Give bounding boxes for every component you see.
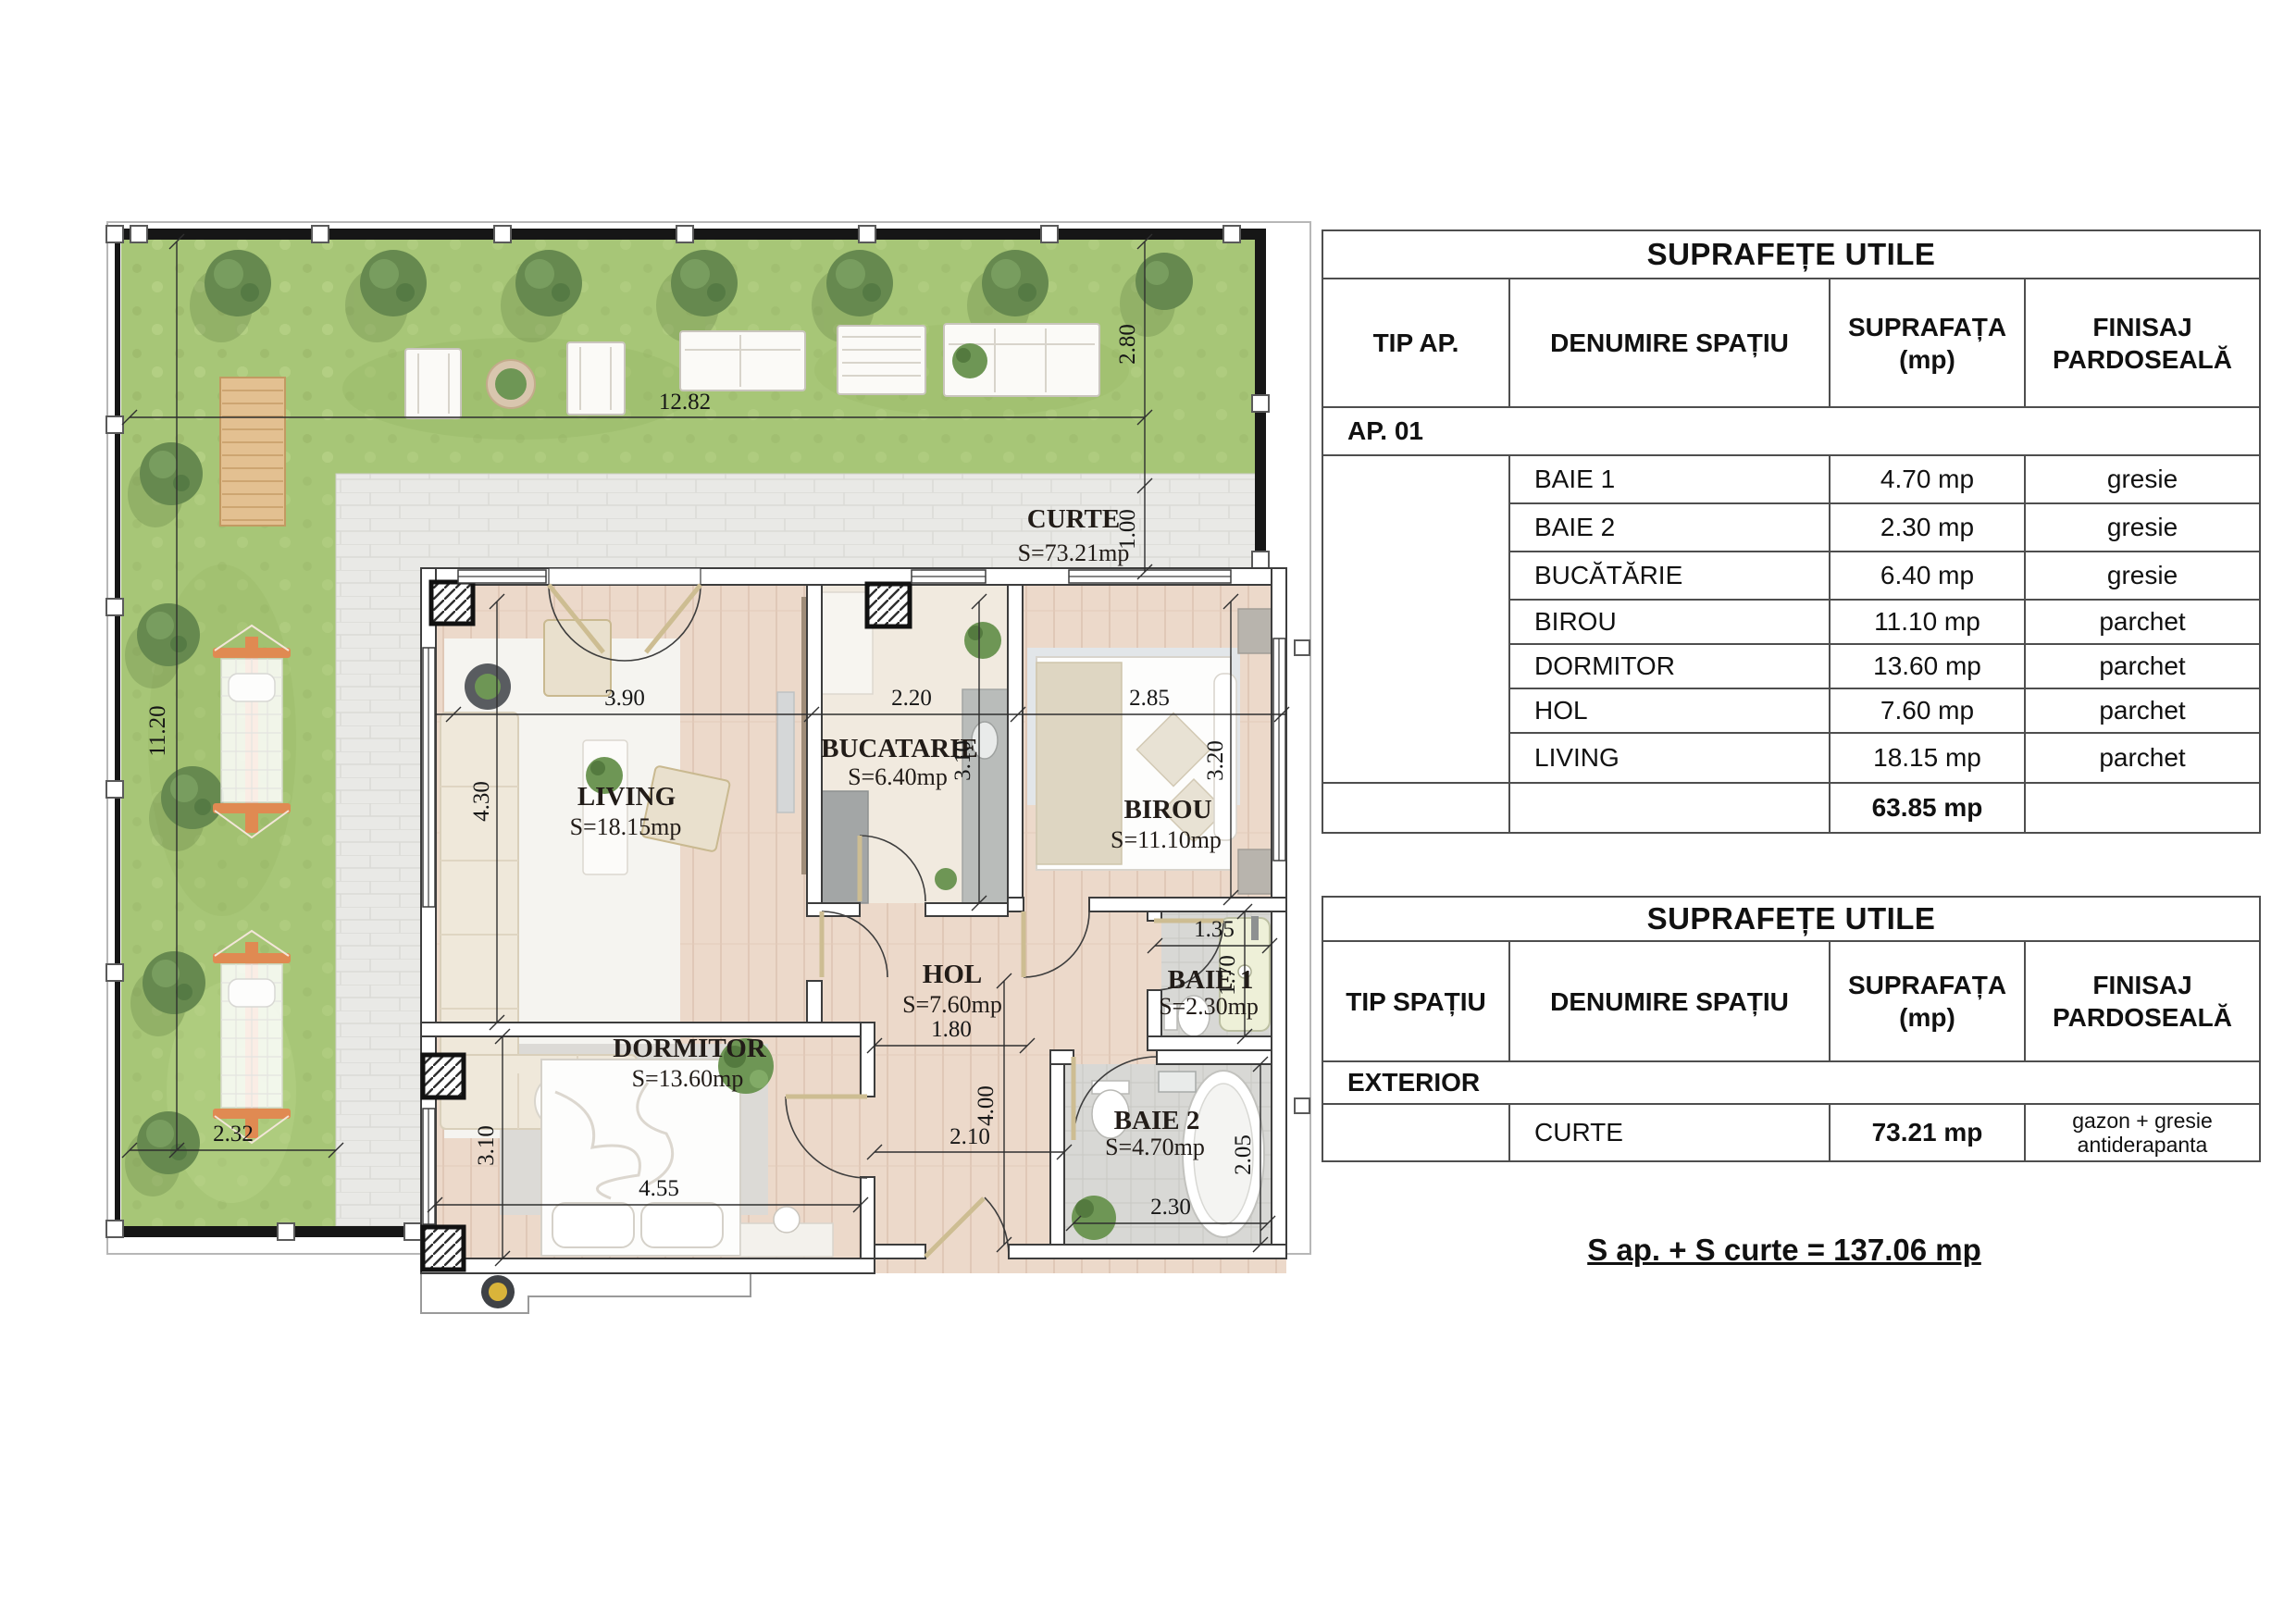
row-name: CURTE xyxy=(1509,1104,1830,1161)
living-area: S=18.15mp xyxy=(570,813,682,840)
dim-dormitor-w: 4.55 xyxy=(639,1176,679,1201)
bucatarie-area: S=6.40mp xyxy=(848,763,948,790)
row-name: LIVING xyxy=(1509,733,1830,783)
total-empty xyxy=(2025,783,2260,833)
floor-plan: CURTE S=73.21mp LIVING S=18.15mp BUCATAR… xyxy=(93,208,1333,1351)
table2-header-row: TIP SPAȚIU DENUMIRE SPAȚIU SUPRAFAȚA (mp… xyxy=(1322,941,2260,1061)
dim-hol-h: 4.00 xyxy=(974,1085,999,1126)
table1-title: SUPRAFEȚE UTILE xyxy=(1322,230,2260,279)
curte-label: CURTE xyxy=(1027,504,1121,534)
row-finish: gresie xyxy=(2025,552,2260,600)
table1-col-suprafata: SUPRAFAȚA (mp) xyxy=(1830,279,2025,407)
table2-title: SUPRAFEȚE UTILE xyxy=(1322,897,2260,941)
row-area: 18.15 mp xyxy=(1830,733,2025,783)
row-finish: gresie xyxy=(2025,503,2260,552)
row-finish: gazon + gresie antiderapanta xyxy=(2025,1104,2260,1161)
dim-bucatarie-h: 3.10 xyxy=(950,740,975,781)
row-area: 4.70 mp xyxy=(1830,455,2025,503)
table2-col-finisaj: FINISAJ PARDOSEALĂ xyxy=(2025,941,2260,1061)
row-name: BUCĂTĂRIE xyxy=(1509,552,1830,600)
dim-baie1-w: 1.35 xyxy=(1194,917,1235,942)
dim-hol-w: 2.10 xyxy=(949,1124,990,1149)
row-name: HOL xyxy=(1509,688,1830,733)
curte-area: S=73.21mp xyxy=(1018,539,1130,566)
row-area: 2.30 mp xyxy=(1830,503,2025,552)
row-finish: parchet xyxy=(2025,733,2260,783)
table-suprafete-ap: SUPRAFEȚE UTILE TIP AP. DENUMIRE SPAȚIU … xyxy=(1322,229,2261,834)
table-row: BAIE 1 4.70 mp gresie xyxy=(1322,455,2260,503)
dim-living-w: 3.90 xyxy=(604,686,645,711)
dim-baie2-w: 2.30 xyxy=(1150,1195,1191,1220)
table1-title-row: SUPRAFEȚE UTILE xyxy=(1322,230,2260,279)
row-area: 73.21 mp xyxy=(1830,1104,2025,1161)
hol-area: S=7.60mp xyxy=(902,991,1002,1018)
baie1-label: BAIE 1 xyxy=(1168,965,1254,995)
table1-total-row: 63.85 mp xyxy=(1322,783,2260,833)
row-name: BAIE 1 xyxy=(1509,455,1830,503)
dim-living-h: 4.30 xyxy=(469,781,494,822)
summary-total: S ap. + S curte = 137.06 mp xyxy=(1368,1233,2201,1268)
dim-hol-top: 1.80 xyxy=(931,1017,972,1042)
hol-label: HOL xyxy=(923,960,982,989)
dim-baie2-h: 2.05 xyxy=(1231,1134,1256,1175)
row-finish: parchet xyxy=(2025,644,2260,688)
table1-col-finisaj: FINISAJ PARDOSEALĂ xyxy=(2025,279,2260,407)
table1-tip-cell xyxy=(1322,455,1509,783)
baie2-label: BAIE 2 xyxy=(1114,1106,1200,1135)
dim-garden-w: 12.82 xyxy=(659,390,711,415)
hammock-2 xyxy=(213,931,291,1143)
table2-tip-cell xyxy=(1322,1104,1509,1161)
row-area: 6.40 mp xyxy=(1830,552,2025,600)
dim-walkway: 1.00 xyxy=(1115,509,1140,550)
table-row: CURTE 73.21 mp gazon + gresie antiderapa… xyxy=(1322,1104,2260,1161)
pergola xyxy=(220,378,285,526)
row-area: 7.60 mp xyxy=(1830,688,2025,733)
table1-group-row: AP. 01 xyxy=(1322,407,2260,455)
table1-col-denumire: DENUMIRE SPAȚIU xyxy=(1509,279,1830,407)
dormitor-label: DORMITOR xyxy=(613,1034,766,1063)
row-area: 13.60 mp xyxy=(1830,644,2025,688)
table1-total: 63.85 mp xyxy=(1830,783,2025,833)
dim-birou-h: 3.20 xyxy=(1203,740,1228,781)
living-label: LIVING xyxy=(577,782,676,812)
table2-group-row: EXTERIOR xyxy=(1322,1061,2260,1104)
row-finish: parchet xyxy=(2025,688,2260,733)
row-name: BIROU xyxy=(1509,600,1830,644)
baie1-area: S=2.30mp xyxy=(1159,993,1259,1020)
table2-col-denumire: DENUMIRE SPAȚIU xyxy=(1509,941,1830,1061)
dim-garden-h: 11.20 xyxy=(145,705,170,756)
birou-area: S=11.10mp xyxy=(1111,826,1222,853)
total-empty xyxy=(1509,783,1830,833)
row-finish: gresie xyxy=(2025,455,2260,503)
dim-dormitor-h: 3.10 xyxy=(474,1125,499,1166)
table1-group: AP. 01 xyxy=(1322,407,2260,455)
table2-title-row: SUPRAFEȚE UTILE xyxy=(1322,897,2260,941)
row-area: 11.10 mp xyxy=(1830,600,2025,644)
table-suprafete-exterior: SUPRAFEȚE UTILE TIP SPAȚIU DENUMIRE SPAȚ… xyxy=(1322,896,2261,1162)
table1-header-row: TIP AP. DENUMIRE SPAȚIU SUPRAFAȚA (mp) F… xyxy=(1322,279,2260,407)
dim-bucatarie-w: 2.20 xyxy=(891,686,932,711)
birou-label: BIROU xyxy=(1123,795,1211,824)
hammock-1 xyxy=(213,626,291,837)
row-finish: parchet xyxy=(2025,600,2260,644)
dim-garden-r: 2.80 xyxy=(1115,324,1140,365)
dim-birou-w: 2.85 xyxy=(1129,686,1170,711)
page: CURTE S=73.21mp LIVING S=18.15mp BUCATAR… xyxy=(0,0,2296,1624)
row-name: BAIE 2 xyxy=(1509,503,1830,552)
dim-garden-b: 2.32 xyxy=(213,1122,254,1147)
table2-col-suprafata: SUPRAFAȚA (mp) xyxy=(1830,941,2025,1061)
table1-col-tip: TIP AP. xyxy=(1322,279,1509,407)
baie2-area: S=4.70mp xyxy=(1105,1134,1205,1160)
dim-baie1-h: 1.70 xyxy=(1215,955,1240,996)
row-name: DORMITOR xyxy=(1509,644,1830,688)
dormitor-area: S=13.60mp xyxy=(632,1065,744,1092)
total-empty xyxy=(1322,783,1509,833)
table2-group: EXTERIOR xyxy=(1322,1061,2260,1104)
table2-col-tip: TIP SPAȚIU xyxy=(1322,941,1509,1061)
